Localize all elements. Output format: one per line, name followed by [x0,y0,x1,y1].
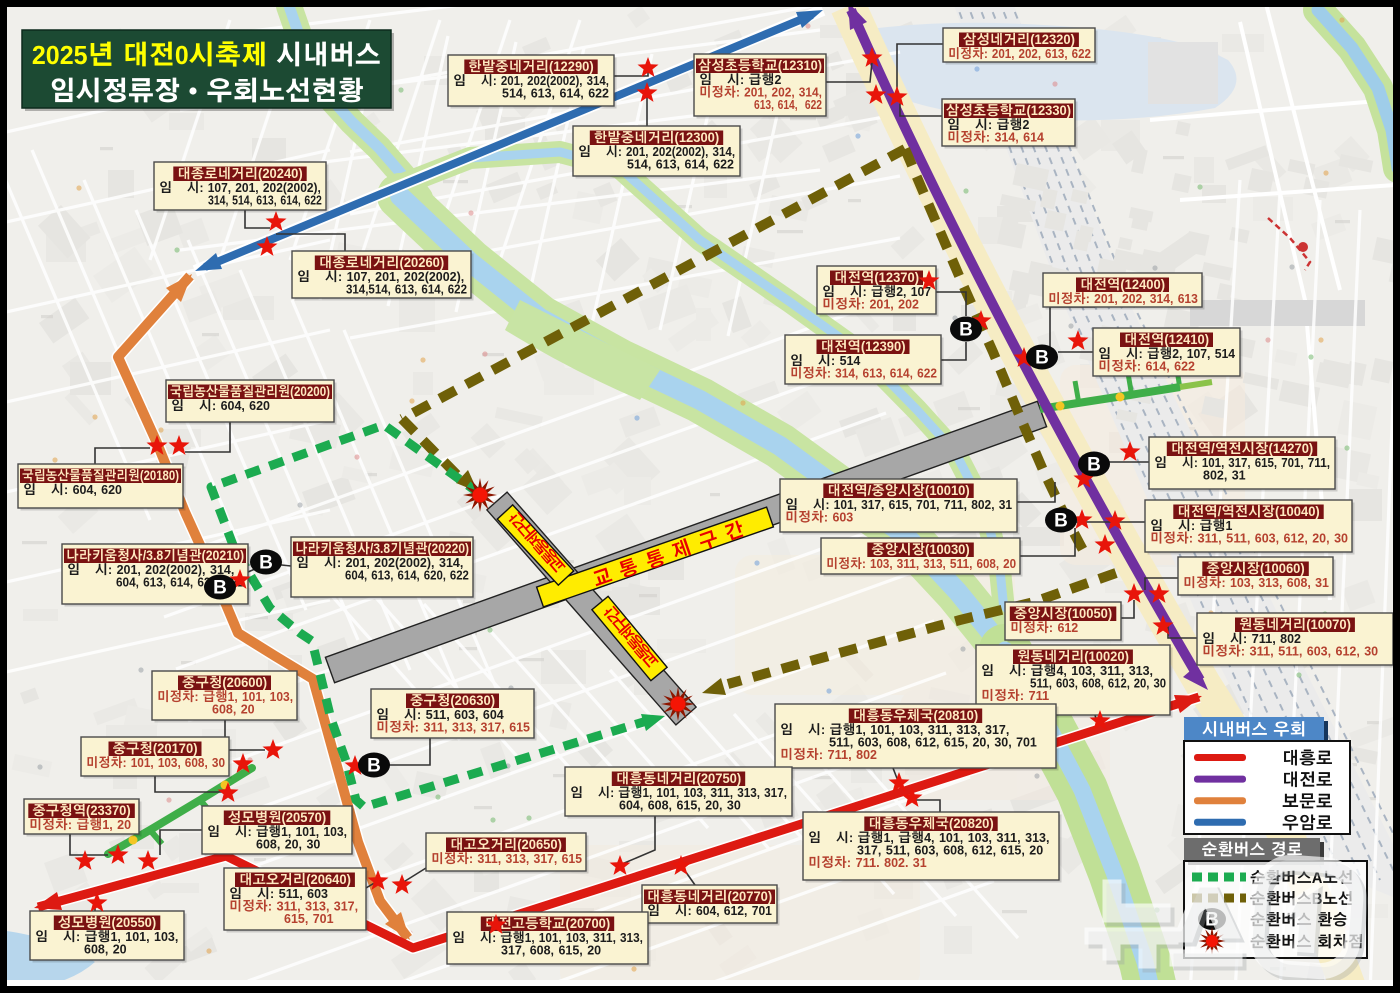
svg-text:30: 30 [1153,676,1166,691]
svg-text:701: 701 [752,903,772,918]
svg-text:622: 622 [713,156,734,171]
svg-text::: : [492,931,496,945]
svg-text:201,: 201, [346,555,370,570]
svg-text::: : [736,85,740,99]
svg-text:(20170): (20170) [153,741,198,756]
svg-text::: : [200,180,204,195]
svg-text::: : [76,929,80,944]
svg-text:701,: 701, [916,497,939,512]
svg-text:614,: 614, [1145,358,1169,373]
svg-text:(20750): (20750) [697,771,742,786]
svg-text:103,: 103, [1230,575,1254,590]
svg-text:615,: 615, [889,497,912,512]
svg-text:313,: 313, [923,557,946,572]
svg-text::: : [248,824,252,839]
svg-text:614,: 614, [280,192,300,207]
svg-text:701: 701 [1016,734,1037,749]
svg-text:/3.8: /3.8 [143,548,164,563]
svg-text::: : [1221,575,1225,590]
svg-text:612,: 612, [1336,643,1360,658]
svg-text:615: 615 [562,851,582,866]
svg-text:615: 615 [509,719,530,734]
svg-text:620,: 620, [424,568,446,583]
svg-text:614,: 614, [684,156,708,171]
svg-text:614,: 614, [890,366,913,380]
svg-text:615,: 615, [944,734,968,749]
svg-text::: : [268,898,272,913]
svg-text:1,: 1, [102,817,112,832]
svg-text:612,: 612, [972,842,996,857]
svg-text:(12400): (12400) [1120,277,1165,292]
svg-text:0: 0 [175,40,189,70]
svg-text:612,: 612, [1284,530,1308,545]
svg-text:314,: 314, [835,366,858,380]
svg-text:615,: 615, [1001,842,1025,857]
svg-text:(12410): (12410) [1164,332,1209,347]
svg-text:/3.8: /3.8 [370,541,390,557]
svg-text:(20570): (20570) [282,810,327,825]
svg-text:202(2002),: 202(2002), [145,562,205,577]
svg-text:511,: 511, [1278,643,1302,658]
svg-text:20,: 20, [973,734,990,749]
svg-text:511,: 511, [950,557,973,572]
svg-text:30: 30 [306,836,320,851]
svg-text:(20600): (20600) [222,675,267,690]
svg-text:2: 2 [774,72,781,87]
svg-text:(12330): (12330) [1026,103,1071,118]
svg-text:(20210): (20210) [202,548,244,563]
svg-text:30: 30 [1364,643,1378,658]
svg-text:20,: 20, [285,836,302,851]
svg-text:514,: 514, [232,192,252,207]
svg-text:622: 622 [917,366,937,380]
svg-text:103,: 103, [870,557,893,572]
svg-text:612,: 612, [1108,676,1130,691]
svg-text:31: 31 [913,855,927,870]
svg-text:802,: 802, [971,497,994,512]
svg-text:711,: 711, [944,497,967,512]
svg-text:514: 514 [1215,346,1236,361]
svg-text:20: 20 [1003,557,1016,572]
svg-text:614,: 614, [778,97,798,112]
svg-text:802,: 802, [1203,467,1227,482]
svg-text:604,: 604, [619,797,643,812]
svg-text::: : [862,557,866,572]
svg-text::: : [849,830,853,845]
svg-text:311,: 311, [423,719,447,734]
svg-text:30,: 30, [994,734,1011,749]
svg-text:615,: 615, [558,942,582,957]
svg-text:514: 514 [840,353,862,368]
svg-text::: : [984,47,988,62]
svg-text::: : [123,756,127,770]
svg-text:614: 614 [1023,129,1045,144]
svg-text:201,: 201, [992,47,1015,62]
svg-text::: : [824,509,828,524]
svg-text:101,: 101, [125,929,149,944]
svg-text:608,: 608, [256,836,280,851]
svg-text:620: 620 [101,482,122,497]
svg-text:711,: 711, [827,747,851,762]
svg-text:613,: 613, [256,192,276,207]
svg-text:615,: 615, [676,797,700,812]
svg-text::: : [337,555,341,570]
svg-text::: : [819,747,823,762]
svg-text:20,: 20, [705,797,722,812]
svg-text:(12290): (12290) [549,59,594,74]
svg-text:202(2002),: 202(2002), [404,269,464,284]
svg-text::: : [1049,620,1053,635]
svg-text:802: 802 [856,747,877,762]
svg-text:604,: 604, [696,903,720,918]
svg-text:103,: 103, [154,929,178,944]
svg-text:107,: 107, [347,269,371,284]
svg-text:613,: 613, [656,156,680,171]
svg-text:311,: 311, [897,557,920,572]
svg-text:(12320): (12320) [1030,32,1075,47]
svg-text:30: 30 [1334,530,1348,545]
svg-text:604,: 604, [345,568,367,583]
svg-text:615,: 615, [284,911,308,926]
svg-text:608,: 608, [185,756,208,770]
svg-text:313,: 313, [1258,575,1282,590]
svg-text::: : [194,689,198,704]
svg-text:603: 603 [832,509,853,524]
svg-text:B: B [1035,348,1049,369]
svg-text::: : [861,296,865,311]
svg-text:612,: 612, [724,903,748,918]
svg-text:(12390): (12390) [861,339,906,354]
svg-text:B: B [1054,511,1068,532]
svg-text:603,: 603, [1255,530,1279,545]
svg-text:608,: 608, [212,701,236,716]
svg-text:802.: 802. [884,855,908,870]
svg-text:/: / [1211,441,1215,456]
svg-text:(20220): (20220) [428,541,470,557]
svg-text::: : [108,562,112,577]
svg-text:311,: 311, [1197,530,1221,545]
svg-text:(23370): (23370) [86,803,131,818]
svg-text:613,: 613, [1045,47,1068,62]
svg-text:622: 622 [588,85,609,100]
svg-text:(20640): (20640) [306,872,351,887]
svg-text:20,: 20, [1134,676,1150,691]
svg-text:103,: 103, [158,756,181,770]
svg-text:/: / [1218,504,1222,519]
svg-text:(12310): (12310) [778,58,822,73]
svg-text:608,: 608, [943,842,967,857]
svg-text:30: 30 [212,756,225,770]
svg-text:20: 20 [241,701,255,716]
svg-text:2025: 2025 [32,40,88,70]
svg-text:314,: 314, [439,555,463,570]
svg-text:202: 202 [898,296,919,311]
svg-text::: : [688,903,692,918]
svg-text:613: 613 [1178,291,1198,306]
svg-text:(20550): (20550) [112,915,157,930]
svg-text:311,: 311, [477,851,501,866]
svg-text:604,: 604, [221,398,245,413]
svg-text::: : [493,74,497,89]
svg-text:317,: 317, [334,898,358,913]
svg-text:(10060): (10060) [1260,561,1305,576]
svg-text:201,: 201, [869,296,893,311]
svg-text:613,: 613, [863,366,886,380]
svg-text:317,: 317, [481,719,505,734]
svg-text::: : [610,786,614,800]
svg-text:(10050): (10050) [1068,606,1113,621]
svg-text::: : [469,851,473,866]
svg-text:B: B [259,553,273,574]
svg-text::: : [986,129,990,144]
svg-text:20: 20 [1029,842,1043,857]
svg-text:317,: 317, [861,497,884,512]
svg-text:612,: 612, [915,734,939,749]
svg-text:608,: 608, [84,941,108,956]
svg-text:(20770): (20770) [728,889,773,904]
svg-text:20: 20 [113,941,127,956]
svg-text:613,: 613, [754,97,774,112]
svg-text:613,: 613, [395,282,417,297]
svg-text:202,: 202, [1019,47,1042,62]
svg-text::: : [827,366,831,380]
svg-text:701: 701 [313,911,334,926]
svg-text:604,: 604, [73,482,97,497]
svg-text:608,: 608, [530,942,554,957]
svg-text:(10040): (10040) [1275,504,1320,519]
svg-text:(12370): (12370) [874,270,919,285]
svg-text::: : [821,722,825,737]
svg-text:311,: 311, [1249,643,1273,658]
svg-text:103,: 103, [270,689,293,704]
svg-text:31: 31 [1315,575,1329,590]
svg-text:31: 31 [999,497,1012,512]
svg-text:31: 31 [1232,467,1246,482]
svg-text:B: B [959,320,973,341]
svg-text:614,: 614, [170,575,193,589]
svg-text:317,: 317, [501,942,525,957]
svg-text::: : [1022,663,1026,678]
svg-text:(20630): (20630) [450,693,495,708]
svg-text:622: 622 [1072,47,1091,62]
svg-text:/: / [868,483,872,498]
svg-text:622: 622 [450,568,469,583]
svg-text:614,: 614, [559,85,583,100]
svg-text::: : [338,269,342,284]
svg-text:(12300): (12300) [675,130,720,145]
svg-text:317,: 317, [534,851,558,866]
svg-text:314,: 314, [994,129,1018,144]
svg-text::: : [212,398,216,413]
svg-text:608,: 608, [886,734,910,749]
svg-text:314,514,: 314,514, [346,282,391,297]
svg-text:620: 620 [249,398,270,413]
svg-text:622: 622 [1174,358,1195,373]
svg-text:313,: 313, [452,719,476,734]
svg-text:603,: 603, [1056,676,1078,691]
svg-text:613,: 613, [143,575,166,589]
svg-text:(20700): (20700) [566,916,611,931]
svg-text::: : [1137,358,1141,373]
svg-text:(10070): (10070) [1306,617,1351,632]
svg-text:20,: 20, [1312,530,1329,545]
svg-text:608,: 608, [1287,575,1311,590]
svg-text:202,: 202, [1122,291,1146,306]
svg-text:30: 30 [727,797,741,812]
svg-text:711.: 711. [855,855,879,870]
svg-text:603,: 603, [1307,643,1331,658]
svg-text:608,: 608, [977,557,1000,572]
svg-text::: : [1189,530,1193,545]
svg-text:711: 711 [1028,688,1049,703]
svg-text::: : [1241,643,1245,658]
svg-text:20: 20 [587,942,601,957]
svg-text:622: 622 [448,282,467,297]
svg-text:(20820): (20820) [949,816,994,831]
svg-text:202(2002),: 202(2002), [374,555,434,570]
svg-text::: : [740,72,744,87]
svg-text:(20810): (20810) [934,708,979,723]
svg-text:613,: 613, [371,568,393,583]
svg-text:711,: 711, [1308,456,1330,471]
svg-text:511,: 511, [1226,530,1250,545]
svg-text::: : [618,145,622,160]
svg-text:701,: 701, [1281,456,1303,471]
svg-text::: : [847,855,851,870]
svg-text:615,: 615, [1255,456,1277,471]
svg-text:514,: 514, [627,156,651,171]
svg-text:(10030): (10030) [925,542,970,557]
svg-text:(20650): (20650) [517,837,562,852]
svg-text:(10010): (10010) [925,483,970,498]
svg-text:201,: 201, [117,562,141,577]
svg-text::: : [415,719,419,734]
svg-text:614,: 614, [421,282,443,297]
svg-text:612: 612 [1057,620,1078,635]
svg-text:622: 622 [304,192,322,207]
svg-text:314,: 314, [208,192,228,207]
svg-text:314,: 314, [1150,291,1174,306]
svg-text:(20180): (20180) [140,469,179,484]
svg-text:101,: 101, [131,756,154,770]
svg-text:103,: 103, [323,824,347,839]
svg-text::: : [831,353,835,368]
svg-text:20: 20 [117,817,131,832]
svg-text:(20200): (20200) [290,384,330,400]
svg-text:201,: 201, [375,269,399,284]
svg-text:608,: 608, [648,797,672,812]
svg-text:B: B [367,756,381,777]
svg-text::: : [1194,456,1198,471]
svg-text:(14270): (14270) [1269,441,1314,456]
svg-text::: : [68,817,72,832]
svg-text:313,: 313, [620,931,643,945]
svg-text:(20240): (20240) [258,166,303,181]
svg-text:514,: 514, [502,85,526,100]
svg-text:613,: 613, [531,85,555,100]
svg-text:622: 622 [805,97,822,112]
svg-text:B: B [213,578,227,599]
svg-text:604,: 604, [116,575,139,589]
svg-text:B: B [1087,455,1101,476]
svg-text:614,: 614, [398,568,420,583]
svg-text:317,: 317, [764,786,787,800]
svg-text::: : [1020,688,1024,703]
svg-text:(10020): (10020) [1084,649,1129,664]
svg-text::: : [64,482,68,497]
svg-text::: : [1086,291,1090,306]
svg-text:201,: 201, [1094,291,1118,306]
svg-text:(20260): (20260) [400,255,445,270]
svg-text:313,: 313, [506,851,530,866]
svg-text:608,: 608, [1082,676,1104,691]
